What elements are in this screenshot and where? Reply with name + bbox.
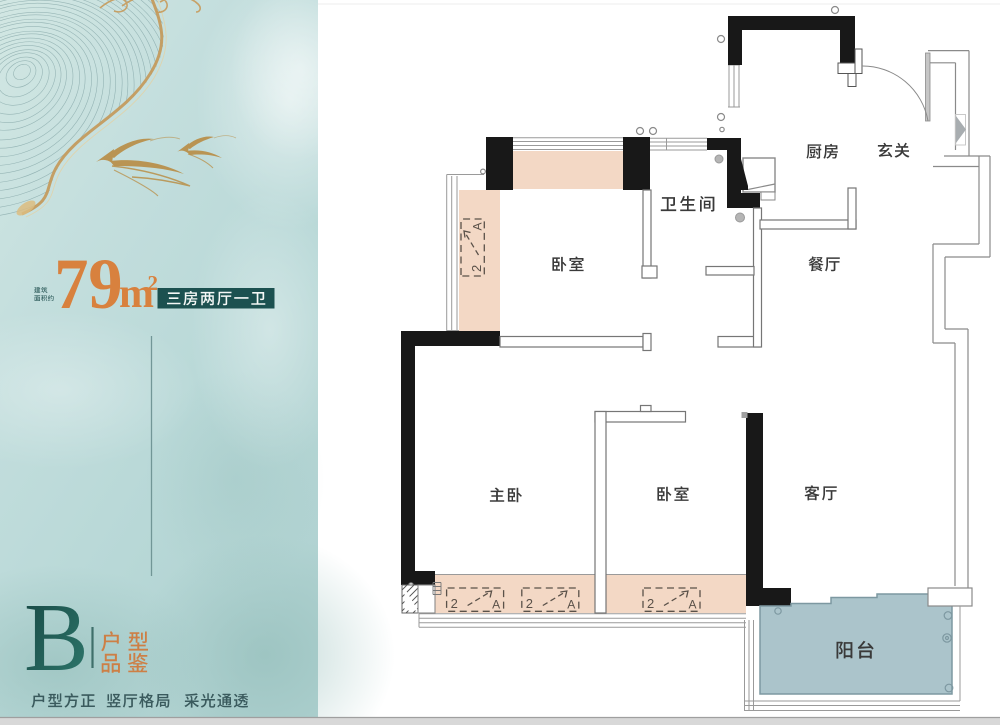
svg-text:2: 2 (451, 596, 458, 611)
svg-text:A: A (492, 598, 500, 612)
svg-text:2: 2 (148, 271, 159, 295)
svg-text:A: A (567, 598, 575, 612)
svg-text:2: 2 (647, 596, 654, 611)
svg-text:A: A (471, 222, 485, 230)
svg-text:2: 2 (526, 596, 533, 611)
svg-text:79: 79 (54, 244, 122, 324)
svg-text:B: B (24, 584, 89, 691)
svg-text:2: 2 (469, 265, 484, 272)
svg-text:A: A (689, 598, 697, 612)
